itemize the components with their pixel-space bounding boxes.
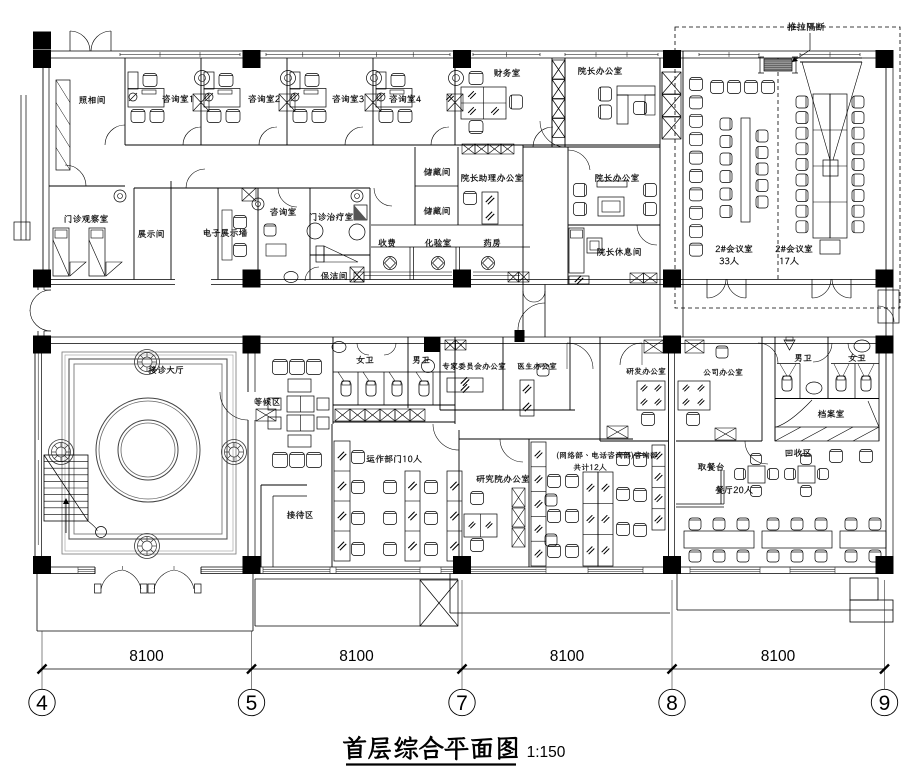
svg-text:4: 4 bbox=[36, 692, 48, 715]
svg-text:7: 7 bbox=[456, 692, 468, 715]
svg-text:8100: 8100 bbox=[761, 648, 796, 665]
svg-text:5: 5 bbox=[246, 692, 258, 715]
svg-text:8: 8 bbox=[666, 692, 678, 715]
svg-text:1:150: 1:150 bbox=[527, 744, 566, 761]
svg-text:8100: 8100 bbox=[339, 648, 374, 665]
svg-text:8100: 8100 bbox=[129, 648, 164, 665]
svg-text:8100: 8100 bbox=[550, 648, 585, 665]
svg-text:9: 9 bbox=[879, 692, 891, 715]
